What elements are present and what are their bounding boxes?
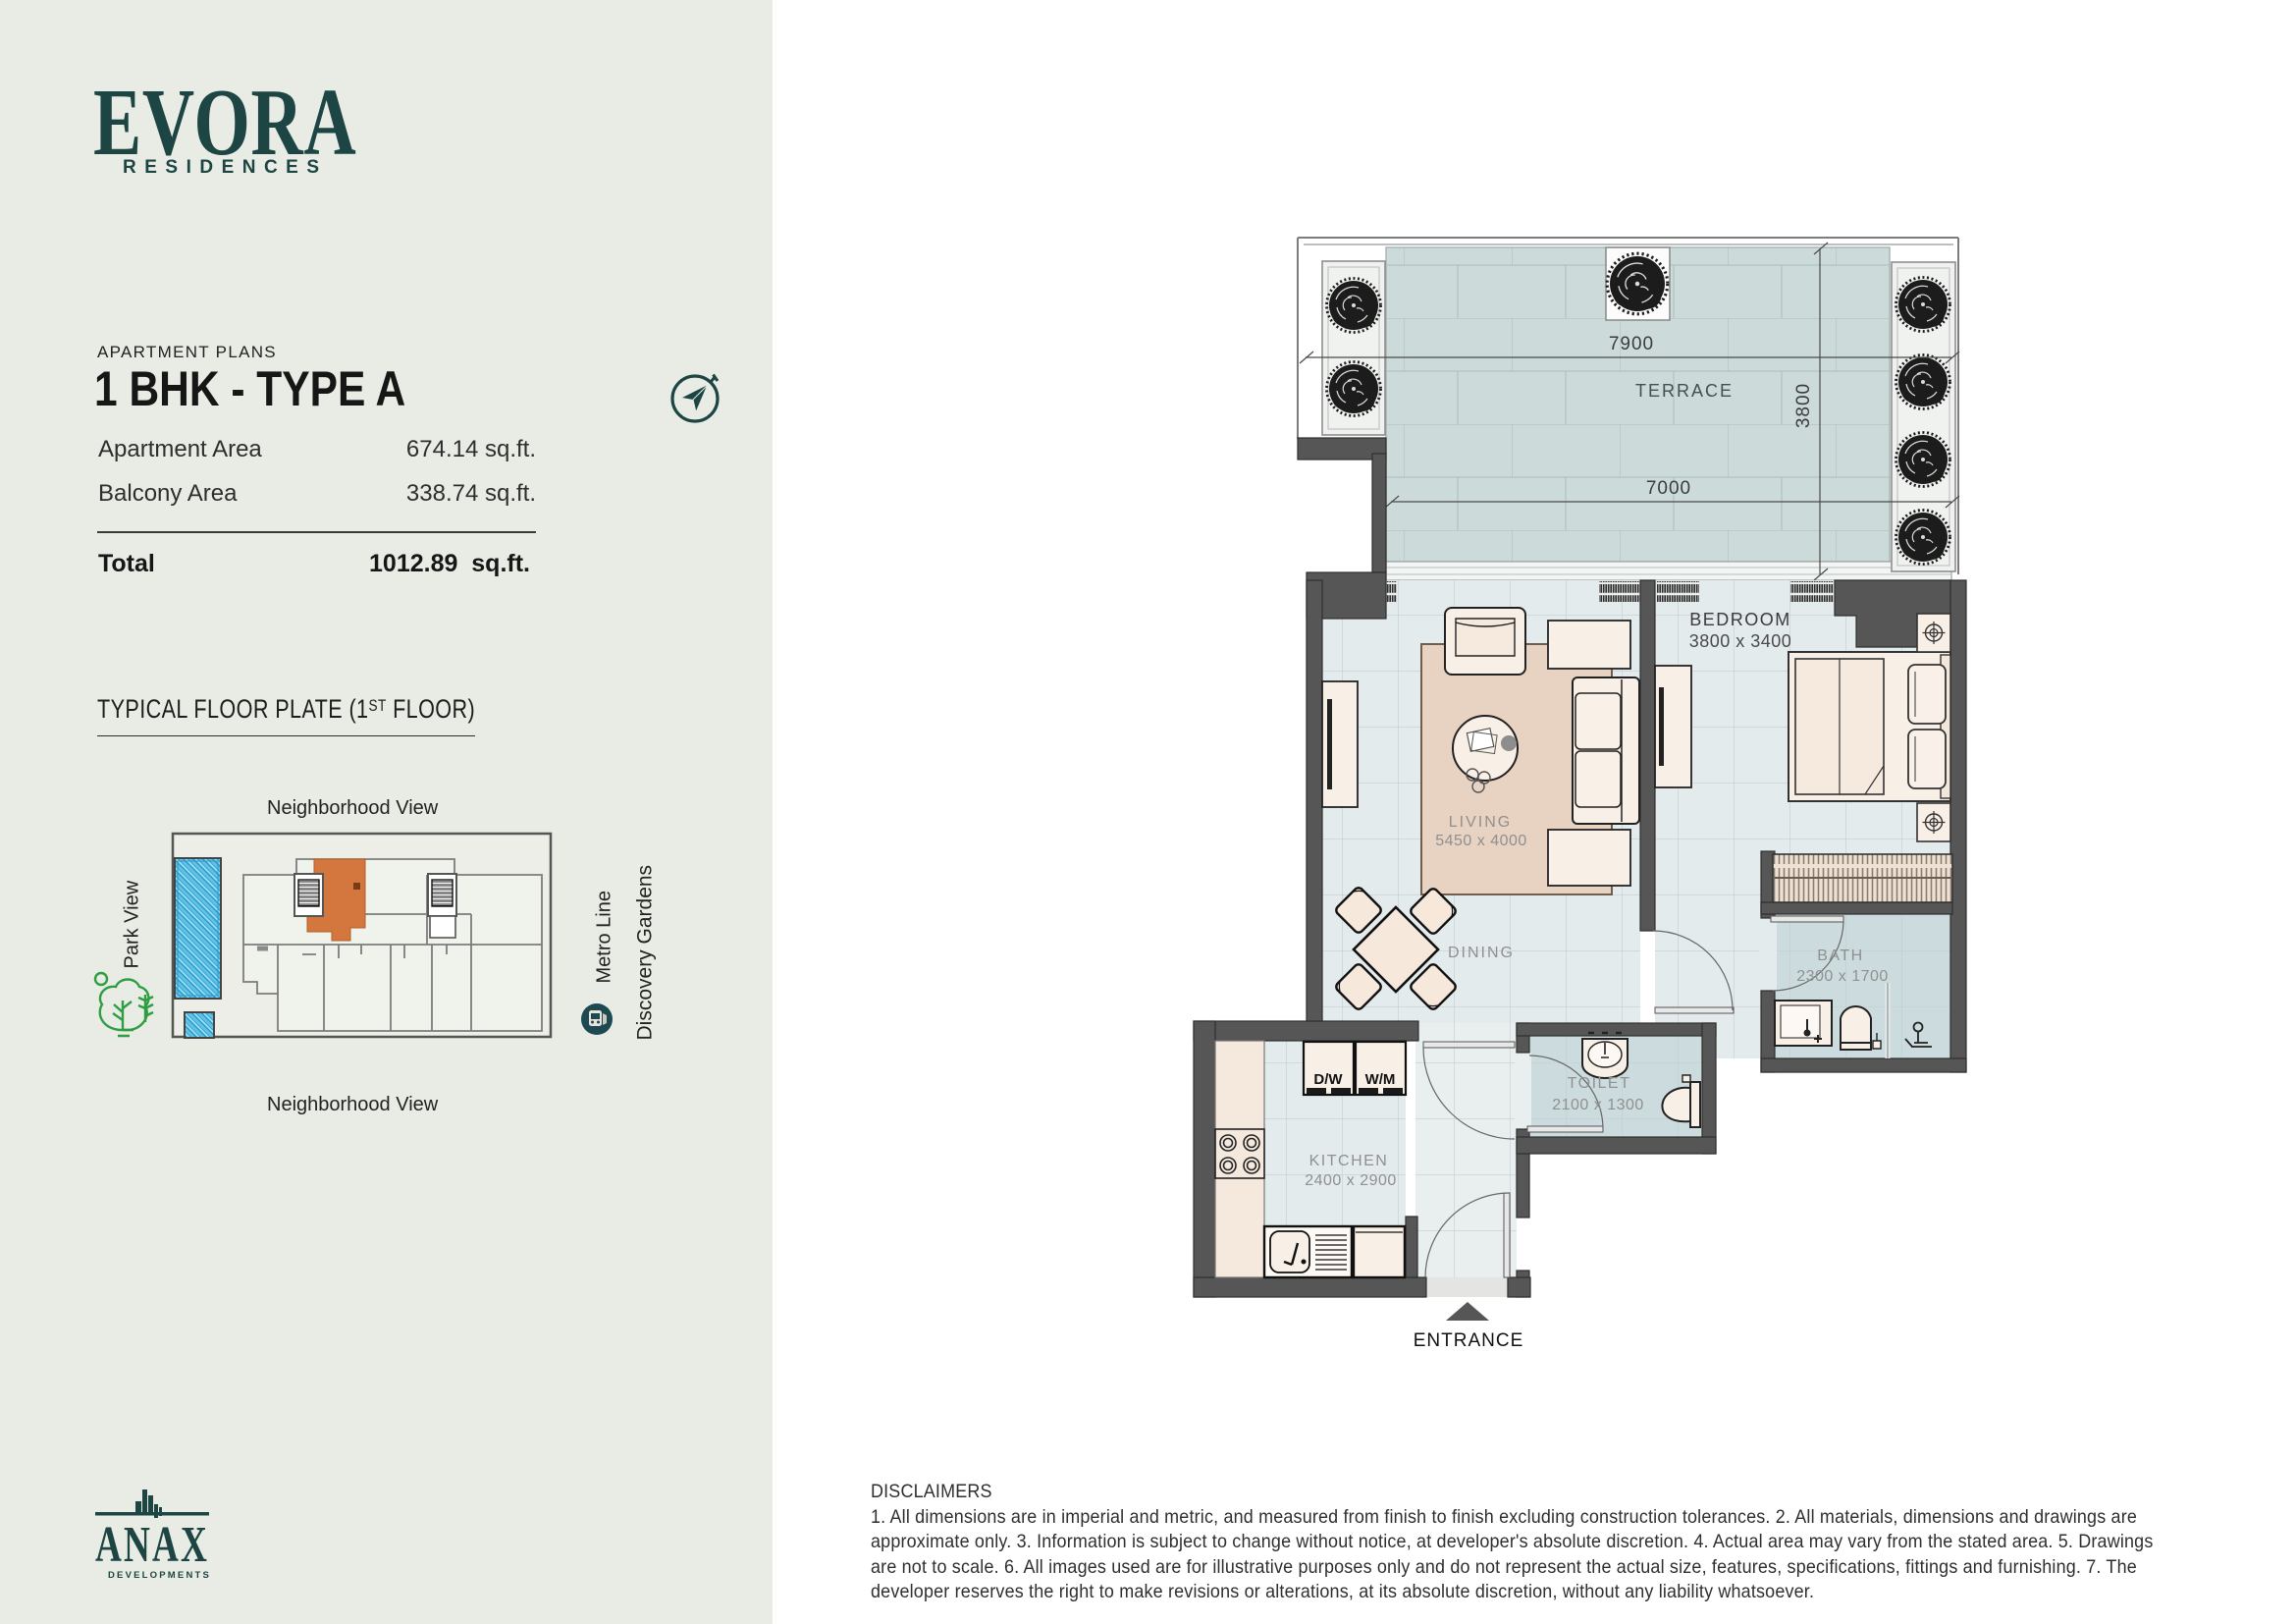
svg-text:7000: 7000 [1646, 478, 1691, 499]
svg-text:BEDROOM: BEDROOM [1689, 610, 1791, 629]
svg-text:TERRACE: TERRACE [1635, 381, 1734, 401]
svg-text:2300 x 1700: 2300 x 1700 [1796, 968, 1889, 985]
svg-text:TOILET: TOILET [1568, 1075, 1631, 1092]
svg-text:BATH: BATH [1817, 947, 1863, 964]
svg-text:7900: 7900 [1609, 334, 1654, 354]
svg-text:W/M: W/M [1365, 1071, 1396, 1088]
svg-text:2400 x 2900: 2400 x 2900 [1305, 1172, 1397, 1189]
svg-text:2100 x 1300: 2100 x 1300 [1552, 1097, 1644, 1113]
svg-text:D/W: D/W [1313, 1071, 1343, 1088]
svg-text:KITCHEN: KITCHEN [1309, 1153, 1389, 1169]
svg-text:DINING: DINING [1448, 945, 1515, 961]
svg-text:5450 x 4000: 5450 x 4000 [1435, 833, 1527, 849]
svg-text:LIVING: LIVING [1449, 814, 1512, 831]
svg-text:3800 x 3400: 3800 x 3400 [1689, 631, 1792, 651]
svg-text:ENTRANCE: ENTRANCE [1414, 1330, 1524, 1351]
svg-text:3800: 3800 [1793, 383, 1814, 428]
